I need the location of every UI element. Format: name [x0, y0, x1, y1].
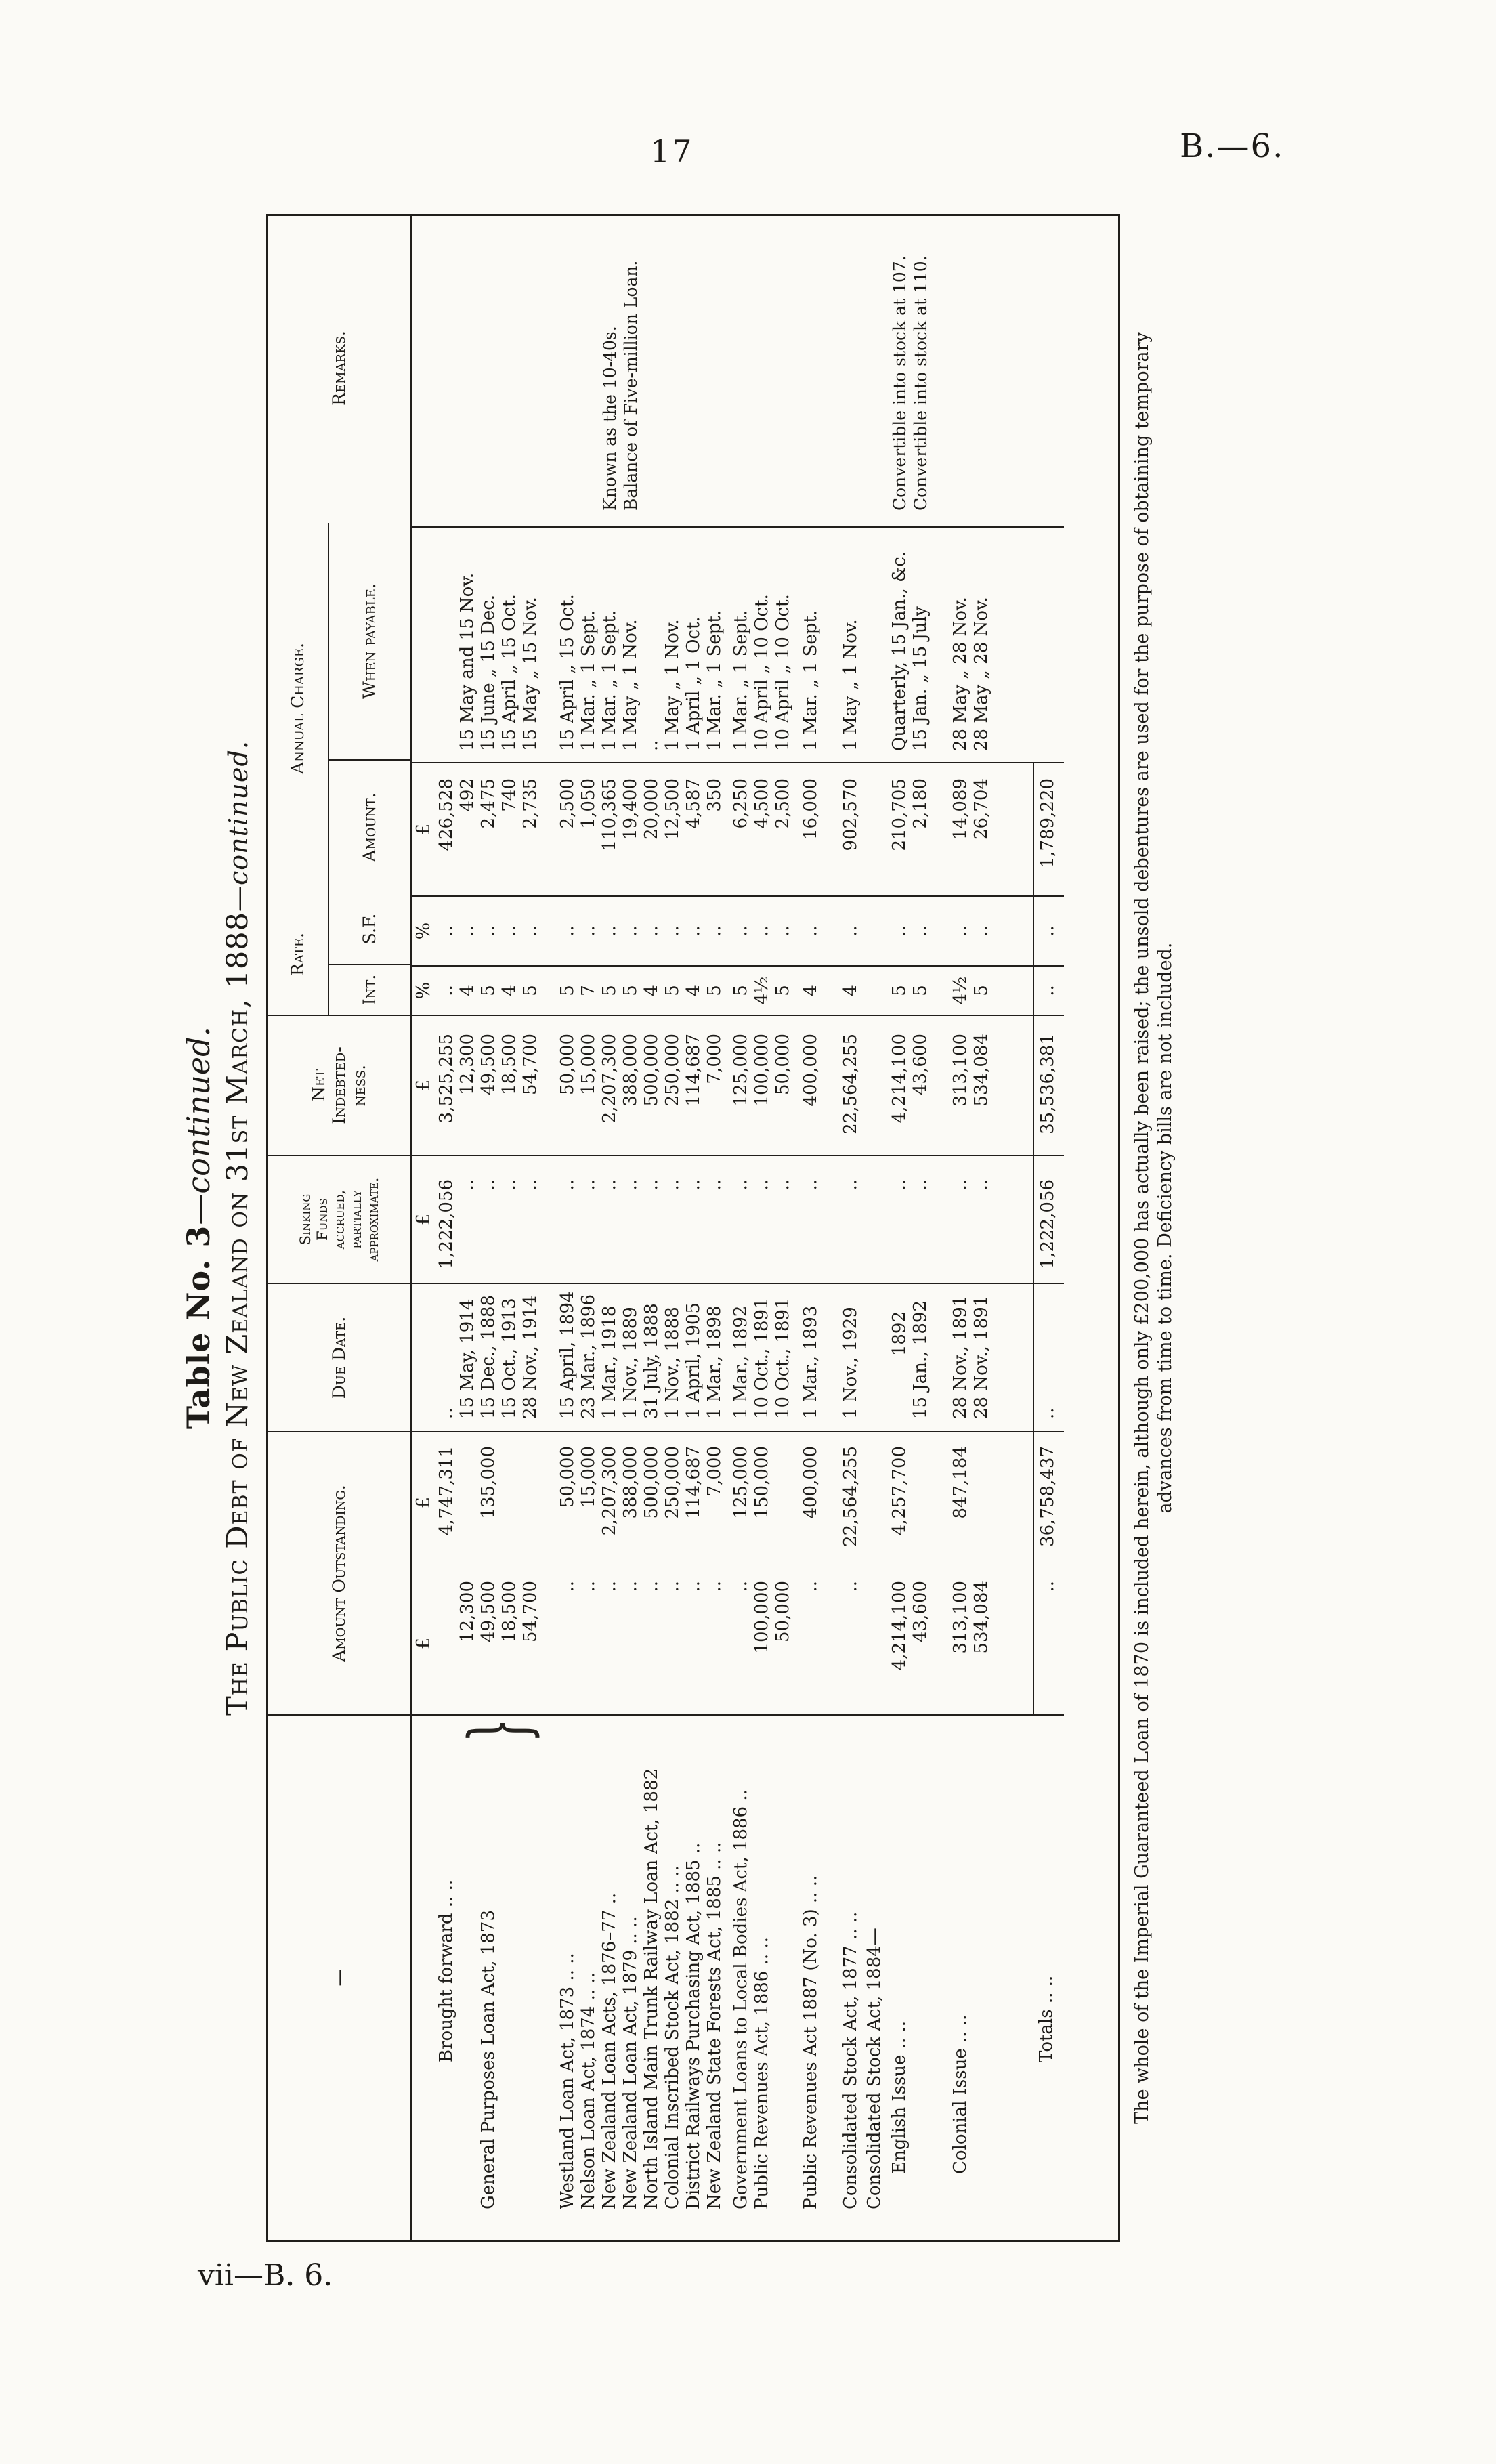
due-date: 10 Oct., 1891	[773, 1283, 794, 1431]
component-amount: ..	[840, 1573, 861, 1714]
table-subtitle: The Public Debt of New Zealand on 31st M…	[219, 214, 261, 2242]
sf-rate: ..	[578, 895, 599, 965]
component-amount: ..	[704, 1573, 725, 1714]
amount-outstanding: 500,000	[641, 1431, 662, 1573]
remark	[557, 216, 578, 526]
sinking-funds: ..	[971, 1155, 992, 1283]
net-indebtedness: 22,564,255	[840, 1015, 861, 1155]
totals-label: Totals .. ..	[1033, 1714, 1064, 2240]
net-indebtedness: 12,300	[457, 1015, 478, 1155]
net-indebtedness: 4,214,100	[889, 1015, 910, 1155]
interest-rate: 5	[557, 965, 578, 1015]
loan-name: Brought forward .. ..	[436, 1714, 457, 2240]
net-indebtedness: 15,000	[578, 1015, 599, 1155]
when-payable: 15 April „ 15 Oct.	[557, 526, 578, 762]
table-row: Public Revenues Act, 1886 .. .. 100,000 …	[752, 216, 773, 2240]
component-amount: ..	[599, 1573, 620, 1714]
sinking-funds: ..	[731, 1155, 752, 1283]
interest-rate: 5	[662, 965, 683, 1015]
loan-name: Colonial Issue .. ..	[950, 1714, 971, 2240]
group-brace: }	[456, 1718, 540, 1743]
component-amount: 18,500	[499, 1573, 520, 1714]
when-payable	[1033, 526, 1064, 762]
sf-rate: ..	[499, 895, 520, 965]
component-amount: ..	[557, 1573, 578, 1714]
col-header-sinking-funds: Sinking Funds accrued, partially approxi…	[268, 1155, 410, 1283]
due-date: 1 Nov., 1888	[662, 1283, 683, 1431]
sinking-funds: ..	[840, 1155, 861, 1283]
component-amount: ..	[731, 1573, 752, 1714]
unit-pound-components: £	[412, 1573, 436, 1714]
sinking-funds: ..	[557, 1155, 578, 1283]
net-indebtedness: 400,000	[800, 1015, 821, 1155]
remark	[520, 216, 541, 526]
when-payable: 1 Mar. „ 1 Sept.	[800, 526, 821, 762]
unit-percent-sf: %	[412, 895, 436, 965]
sf-rate: ..	[436, 895, 457, 965]
col-header-rate: Rate.	[268, 894, 329, 1015]
interest-rate: 4½	[950, 965, 971, 1015]
sf-rate: ..	[557, 895, 578, 965]
loan-name: Westland Loan Act, 1873 .. ..	[557, 1714, 578, 2240]
when-payable: 1 May „ 1 Nov.	[620, 526, 641, 762]
annual-charge: 12,500	[662, 762, 683, 895]
group-gap	[821, 216, 840, 2240]
due-date: 15 Dec., 1888	[478, 1283, 499, 1431]
annual-charge: 20,000	[641, 762, 662, 895]
sinking-funds: ..	[499, 1155, 520, 1283]
when-payable: 15 April „ 15 Oct.	[499, 526, 520, 762]
remark	[662, 216, 683, 526]
annual-charge: 4,587	[683, 762, 704, 895]
sf-rate: ..	[457, 895, 478, 965]
col-header-due-date: Due Date.	[268, 1283, 410, 1431]
due-date: 28 Nov., 1914	[520, 1283, 541, 1431]
sf-rate: ..	[620, 895, 641, 965]
annual-charge: 19,400	[620, 762, 641, 895]
group-gap	[725, 216, 731, 2240]
table-title-number: Table No. 3	[180, 1225, 217, 1430]
loan-name	[910, 1714, 931, 2240]
annual-charge: 2,500	[557, 762, 578, 895]
sinking-funds: ..	[889, 1155, 910, 1283]
when-payable	[864, 526, 885, 762]
unit-percent-int: %	[412, 965, 436, 1015]
net-indebtedness-total: 35,536,381	[1033, 1015, 1064, 1155]
sinking-funds: ..	[520, 1155, 541, 1283]
when-payable: 15 June „ 15 Dec.	[478, 526, 499, 762]
annual-charge-total: 1,789,220	[1033, 762, 1064, 895]
table-row: General Purposes Loan Act, 1873 49,500 1…	[478, 216, 499, 2240]
when-payable: 1 Mar. „ 1 Sept.	[704, 526, 725, 762]
net-indebtedness: 50,000	[557, 1015, 578, 1155]
interest-rate: 4	[641, 965, 662, 1015]
due-date: 1 Mar., 1893	[800, 1283, 821, 1431]
net-indebtedness: 534,084	[971, 1015, 992, 1155]
net-indebtedness: 313,100	[950, 1015, 971, 1155]
col-header-rate-int: Int.	[329, 964, 410, 1015]
net-indebtedness: 50,000	[773, 1015, 794, 1155]
annual-charge: 2,500	[773, 762, 794, 895]
footnote-line-2: advances from time to time. Deficiency b…	[1155, 943, 1176, 1514]
sf-rate: ..	[1033, 895, 1064, 965]
net-indebtedness: 43,600	[910, 1015, 931, 1155]
amount-outstanding	[773, 1431, 794, 1573]
loan-name: Government Loans to Local Bodies Act, 18…	[731, 1714, 752, 2240]
amount-outstanding	[864, 1431, 885, 1573]
col-header-loan-name: —	[268, 1714, 410, 2240]
due-date: 1 Mar., 1898	[704, 1283, 725, 1431]
table-subtitle-continued: —continued.	[223, 740, 253, 912]
due-date: ..	[1033, 1283, 1064, 1431]
due-date: 15 Jan., 1892	[910, 1283, 931, 1431]
due-date: 1 Nov., 1889	[620, 1283, 641, 1431]
when-payable: 1 April „ 1 Oct.	[683, 526, 704, 762]
interest-rate: 5	[910, 965, 931, 1015]
table-row: 534,084 28 Nov., 1891 .. 534,084 5 .. 26…	[971, 216, 992, 2240]
table-row: } 12,300 15 May, 1914 .. 12,300 4 .. 492…	[457, 216, 478, 2240]
interest-rate: 4	[683, 965, 704, 1015]
remark	[641, 216, 662, 526]
unit-pound-outstanding: £	[412, 1431, 436, 1573]
amount-outstanding: 22,564,255	[840, 1431, 861, 1573]
sf-rate: ..	[800, 895, 821, 965]
sf-rate: ..	[950, 895, 971, 965]
group-gap	[794, 216, 800, 2240]
sinking-funds: ..	[457, 1155, 478, 1283]
due-date: 1 Mar., 1892	[731, 1283, 752, 1431]
col-header-remarks: Remarks.	[268, 213, 410, 523]
due-date: 23 Mar., 1896	[578, 1283, 599, 1431]
component-amount: ..	[800, 1573, 821, 1714]
annual-charge: 14,089	[950, 762, 971, 895]
table-row: Colonial Issue .. .. 313,100 847,184 28 …	[950, 216, 971, 2240]
loan-name: Consolidated Stock Act, 1877 .. ..	[840, 1714, 861, 2240]
net-indebtedness: 114,687	[683, 1015, 704, 1155]
sf-rate: ..	[731, 895, 752, 965]
sinking-funds: ..	[620, 1155, 641, 1283]
net-indebtedness: 2,207,300	[599, 1015, 620, 1155]
due-date: 1892	[889, 1283, 910, 1431]
interest-rate: 4	[499, 965, 520, 1015]
sf-rate: ..	[704, 895, 725, 965]
component-amount: ..	[1033, 1573, 1064, 1714]
remark	[478, 216, 499, 526]
component-amount: 4,214,100	[889, 1573, 910, 1714]
due-date: 15 May, 1914	[457, 1283, 478, 1431]
amount-outstanding-total: 36,758,437	[1033, 1431, 1064, 1573]
when-payable: Quarterly, 15 Jan., &c.	[889, 526, 910, 762]
amount-outstanding	[520, 1431, 541, 1573]
loan-name: Nelson Loan Act, 1874 .. ..	[578, 1714, 599, 2240]
amount-outstanding	[910, 1431, 931, 1573]
net-indebtedness: 500,000	[641, 1015, 662, 1155]
net-indebtedness: 125,000	[731, 1015, 752, 1155]
sf-rate: ..	[520, 895, 541, 965]
interest-rate: 4	[457, 965, 478, 1015]
annual-charge: 1,050	[578, 762, 599, 895]
net-indebtedness	[864, 1015, 885, 1155]
amount-outstanding	[457, 1431, 478, 1573]
loan-name: English Issue .. ..	[889, 1714, 910, 2240]
table-row: Consolidated Stock Act, 1884—	[864, 216, 885, 2240]
when-payable: 1 Mar. „ 1 Sept.	[599, 526, 620, 762]
interest-rate: 5	[520, 965, 541, 1015]
sf-rate: ..	[683, 895, 704, 965]
col-header-when-payable: When payable.	[329, 523, 410, 759]
interest-rate: ..	[1033, 965, 1064, 1015]
table-row: District Railways Purchasing Act, 1885 .…	[683, 216, 704, 2240]
amount-outstanding: 114,687	[683, 1431, 704, 1573]
interest-rate: 4	[840, 965, 861, 1015]
sf-rate: ..	[889, 895, 910, 965]
sinking-funds: ..	[578, 1155, 599, 1283]
annual-charge: 4,500	[752, 762, 773, 895]
loan-name: North Island Main Trunk Railway Loan Act…	[641, 1714, 662, 2240]
net-indebtedness: 100,000	[752, 1015, 773, 1155]
table-row: 18,500 15 Oct., 1913 .. 18,500 4 .. 740 …	[499, 216, 520, 2240]
component-amount	[436, 1573, 457, 1714]
due-date: 28 Nov., 1891	[971, 1283, 992, 1431]
table-row: North Island Main Trunk Railway Loan Act…	[641, 216, 662, 2240]
interest-rate	[864, 965, 885, 1015]
due-date: 28 Nov., 1891	[950, 1283, 971, 1431]
annual-charge: 2,735	[520, 762, 541, 895]
sf-rate: ..	[971, 895, 992, 965]
remark	[800, 216, 821, 526]
remark	[578, 216, 599, 526]
component-amount: 43,600	[910, 1573, 931, 1714]
remark	[683, 216, 704, 526]
when-payable: 10 April „ 10 Oct.	[773, 526, 794, 762]
amount-outstanding: 388,000	[620, 1431, 641, 1573]
when-payable: 15 May and 15 Nov.	[457, 526, 478, 762]
amount-outstanding: 125,000	[731, 1431, 752, 1573]
remark: Convertible into stock at 110.	[910, 216, 931, 526]
interest-rate: 4½	[752, 965, 773, 1015]
group-gap	[541, 216, 557, 2240]
loan-name: General Purposes Loan Act, 1873	[478, 1714, 499, 2240]
rotated-table-sheet: Table No. 3—continued. The Public Debt o…	[181, 214, 1170, 2242]
annual-charge: 210,705	[889, 762, 910, 895]
due-date	[864, 1283, 885, 1431]
table-row: New Zealand State Forests Act, 1885 .. .…	[704, 216, 725, 2240]
loan-name: New Zealand Loan Act, 1879 .. ..	[620, 1714, 641, 2240]
component-amount: 534,084	[971, 1573, 992, 1714]
amount-outstanding: 250,000	[662, 1431, 683, 1573]
remark	[457, 216, 478, 526]
table-row: New Zealand Loan Act, 1879 .. .. .. 388,…	[620, 216, 641, 2240]
remark	[704, 216, 725, 526]
table-row: Public Revenues Act 1887 (No. 3) .. .. .…	[800, 216, 821, 2240]
unit-pound-net: £	[412, 1015, 436, 1155]
table-row: Nelson Loan Act, 1874 .. .. .. 15,000 23…	[578, 216, 599, 2240]
interest-rate: 7	[578, 965, 599, 1015]
col-header-annual-charge: Annual Charge.	[268, 523, 329, 894]
due-date: ..	[436, 1283, 457, 1431]
sinking-funds: ..	[950, 1155, 971, 1283]
net-indebtedness: 49,500	[478, 1015, 499, 1155]
table-row: 50,000 10 Oct., 1891 .. 50,000 5 .. 2,50…	[773, 216, 794, 2240]
loan-name	[499, 1714, 520, 2240]
due-date: 1 Mar., 1918	[599, 1283, 620, 1431]
remark	[1033, 216, 1064, 526]
when-payable: 15 May „ 15 Nov.	[520, 526, 541, 762]
net-indebtedness: 250,000	[662, 1015, 683, 1155]
amount-outstanding: 15,000	[578, 1431, 599, 1573]
col-header-annual-amount: Amount.	[329, 759, 410, 894]
table-subtitle-text: The Public Debt of New Zealand on 31st M…	[221, 912, 255, 1716]
table-row: Government Loans to Local Bodies Act, 18…	[731, 216, 752, 2240]
sinking-funds: 1,222,056	[436, 1155, 457, 1283]
loan-name: Colonial Inscribed Stock Act, 1882 .. ..	[662, 1714, 683, 2240]
component-amount: 49,500	[478, 1573, 499, 1714]
component-amount: 100,000	[752, 1573, 773, 1714]
annual-charge: 110,365	[599, 762, 620, 895]
paper-reference: B.—6.	[1180, 127, 1284, 165]
loan-name: New Zealand State Forests Act, 1885 .. .…	[704, 1714, 725, 2240]
amount-outstanding: 2,207,300	[599, 1431, 620, 1573]
table-footnote: The whole of the Imperial Guaranteed Loa…	[1131, 214, 1177, 2242]
net-indebtedness: 388,000	[620, 1015, 641, 1155]
net-indebtedness: 7,000	[704, 1015, 725, 1155]
table-title: Table No. 3—continued.	[181, 214, 219, 2242]
unit-blank	[412, 1283, 436, 1431]
col-header-rate-sf: S.F.	[329, 894, 410, 964]
annual-charge: 350	[704, 762, 725, 895]
due-date: 15 Oct., 1913	[499, 1283, 520, 1431]
table-row: Colonial Inscribed Stock Act, 1882 .. ..…	[662, 216, 683, 2240]
when-payable: 1 Mar. „ 1 Sept.	[731, 526, 752, 762]
sf-rate: ..	[840, 895, 861, 965]
col-header-amount-outstanding: Amount Outstanding.	[268, 1431, 410, 1714]
interest-rate: 5	[731, 965, 752, 1015]
component-amount: ..	[683, 1573, 704, 1714]
loan-name: Consolidated Stock Act, 1884—	[864, 1714, 885, 2240]
col-header-annual-charge-group: Annual Charge. Amount. When payable.	[268, 523, 410, 894]
remark	[731, 216, 752, 526]
debt-table: — Amount Outstanding. Due Date. Sinking …	[266, 214, 1120, 2242]
due-date: 15 April, 1894	[557, 1283, 578, 1431]
loan-name	[520, 1714, 541, 2240]
amount-outstanding: 4,747,311	[436, 1431, 457, 1573]
loan-name	[773, 1714, 794, 2240]
totals-row: Totals .. .. .. 36,758,437 .. 1,222,056 …	[1033, 216, 1064, 2240]
due-date: 1 April, 1905	[683, 1283, 704, 1431]
when-payable: 28 May „ 28 Nov.	[971, 526, 992, 762]
remark	[773, 216, 794, 526]
loan-name: Public Revenues Act, 1886 .. ..	[752, 1714, 773, 2240]
sinking-funds: ..	[704, 1155, 725, 1283]
amount-outstanding: 7,000	[704, 1431, 725, 1573]
when-payable: 1 May „ 1 Nov.	[840, 526, 861, 762]
net-indebtedness: 54,700	[520, 1015, 541, 1155]
annual-charge: 2,180	[910, 762, 931, 895]
amount-outstanding: 150,000	[752, 1431, 773, 1573]
footnote-line-1: The whole of the Imperial Guaranteed Loa…	[1132, 332, 1153, 2124]
interest-rate: 5	[971, 965, 992, 1015]
remark	[499, 216, 520, 526]
component-amount: 50,000	[773, 1573, 794, 1714]
remark: Convertible into stock at 107.	[889, 216, 910, 526]
component-amount: ..	[620, 1573, 641, 1714]
unit-blank	[412, 1714, 436, 2240]
table-row: Consolidated Stock Act, 1877 .. .. .. 22…	[840, 216, 861, 2240]
loan-name: }	[457, 1714, 478, 2240]
net-indebtedness: 3,525,255	[436, 1015, 457, 1155]
unit-pound-sinking: £	[412, 1155, 436, 1283]
sinking-funds-total: 1,222,056	[1033, 1155, 1064, 1283]
sf-rate	[864, 895, 885, 965]
when-payable	[436, 526, 457, 762]
sf-rate: ..	[599, 895, 620, 965]
amount-outstanding: 135,000	[478, 1431, 499, 1573]
loan-name: New Zealand Loan Acts, 1876–77 ..	[599, 1714, 620, 2240]
remark	[436, 216, 457, 526]
annual-charge: 16,000	[800, 762, 821, 895]
page-number: 17	[650, 133, 694, 169]
component-amount: ..	[641, 1573, 662, 1714]
remark	[864, 216, 885, 526]
table-row: 43,600 15 Jan., 1892 .. 43,600 5 .. 2,18…	[910, 216, 931, 2240]
amount-outstanding: 50,000	[557, 1431, 578, 1573]
group-gap	[931, 216, 950, 2240]
loan-name	[971, 1714, 992, 2240]
unit-pound-annual: £	[412, 762, 436, 895]
sf-rate: ..	[910, 895, 931, 965]
interest-rate: 5	[704, 965, 725, 1015]
remark: Balance of Five-million Loan.	[620, 216, 641, 526]
sinking-funds: ..	[599, 1155, 620, 1283]
annual-charge: 740	[499, 762, 520, 895]
annual-charge: 426,528	[436, 762, 457, 895]
sinking-funds: ..	[683, 1155, 704, 1283]
interest-rate: 5	[599, 965, 620, 1015]
sf-rate: ..	[641, 895, 662, 965]
sf-rate: ..	[773, 895, 794, 965]
component-amount: 313,100	[950, 1573, 971, 1714]
sf-rate: ..	[478, 895, 499, 965]
interest-rate: 4	[800, 965, 821, 1015]
annual-charge: 2,475	[478, 762, 499, 895]
annual-charge	[864, 762, 885, 895]
amount-outstanding: 400,000	[800, 1431, 821, 1573]
when-payable: 1 Mar. „ 1 Sept.	[578, 526, 599, 762]
component-amount: ..	[578, 1573, 599, 1714]
annual-charge: 902,570	[840, 762, 861, 895]
remark	[840, 216, 861, 526]
unit-blank	[412, 526, 436, 762]
signature-mark: vii—B. 6.	[198, 2258, 333, 2293]
amount-outstanding: 847,184	[950, 1431, 971, 1573]
annual-charge: 26,704	[971, 762, 992, 895]
sinking-funds: ..	[773, 1155, 794, 1283]
sf-rate: ..	[752, 895, 773, 965]
component-amount: 12,300	[457, 1573, 478, 1714]
units-row: £ £ £ £ % % £	[412, 216, 436, 2240]
when-payable: ..	[641, 526, 662, 762]
table-row: 54,700 28 Nov., 1914 .. 54,700 5 .. 2,73…	[520, 216, 541, 2240]
amount-outstanding: 4,257,700	[889, 1431, 910, 1573]
col-header-rate-group: Rate. Int. S.F.	[268, 894, 410, 1015]
remark	[950, 216, 971, 526]
when-payable: 28 May „ 28 Nov.	[950, 526, 971, 762]
due-date: 31 July, 1888	[641, 1283, 662, 1431]
sinking-funds: ..	[910, 1155, 931, 1283]
interest-rate: 5	[620, 965, 641, 1015]
sinking-funds: ..	[478, 1155, 499, 1283]
amount-outstanding	[971, 1431, 992, 1573]
